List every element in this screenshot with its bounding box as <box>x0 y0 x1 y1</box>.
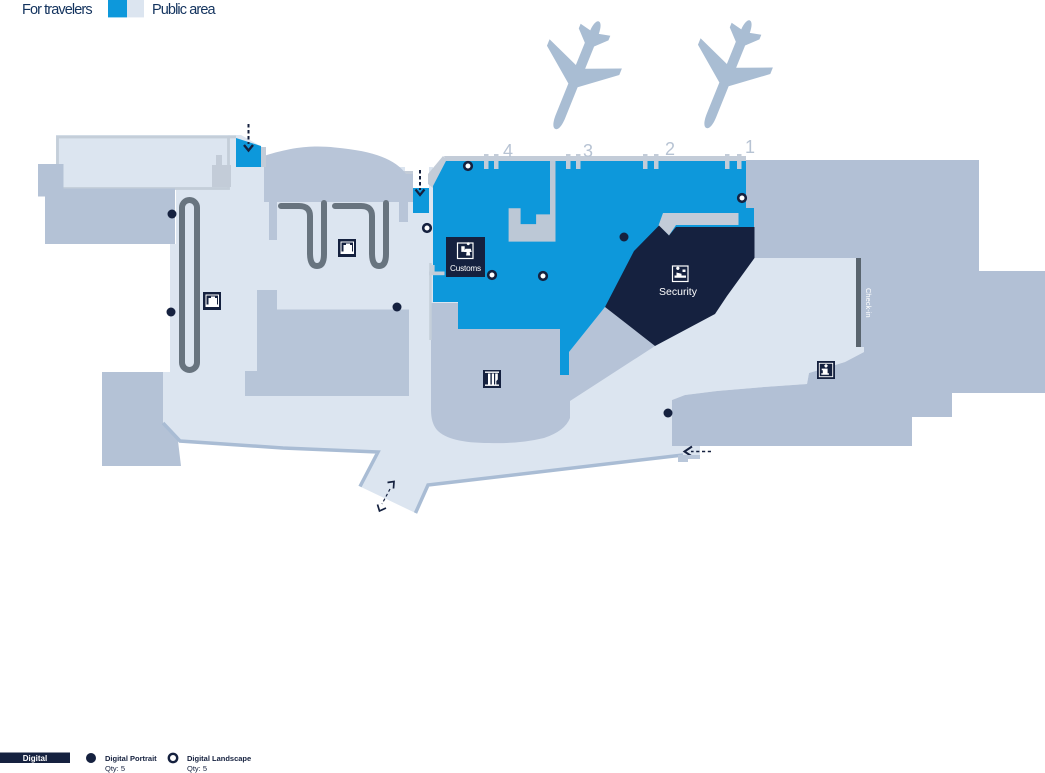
svg-text:Digital: Digital <box>23 754 47 763</box>
svg-text:Check-in: Check-in <box>864 288 873 318</box>
svg-text:Digital Portrait: Digital Portrait <box>105 754 157 763</box>
svg-text:Qty: 5: Qty: 5 <box>105 764 125 773</box>
svg-text:Public area: Public area <box>152 2 216 18</box>
svg-text:4: 4 <box>503 141 513 161</box>
svg-text:Qty: 5: Qty: 5 <box>187 764 207 773</box>
svg-text:3: 3 <box>583 141 593 161</box>
svg-text:2: 2 <box>665 139 675 159</box>
svg-text:Customs: Customs <box>450 264 481 273</box>
svg-text:Digital Landscape: Digital Landscape <box>187 754 251 763</box>
svg-text:Security: Security <box>659 286 698 298</box>
svg-text:1: 1 <box>745 137 755 157</box>
svg-text:For travelers: For travelers <box>22 2 92 18</box>
